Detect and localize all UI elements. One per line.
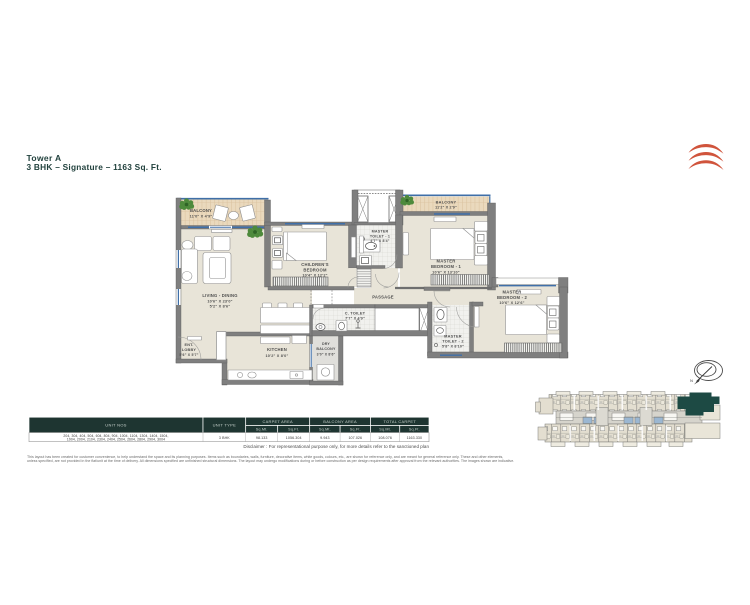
- svg-text:3 BHK – Signature – 1163 Sq. F: 3 BHK – Signature – 1163 Sq. Ft.: [27, 162, 162, 172]
- svg-text:C. TOILET: C. TOILET: [345, 311, 366, 316]
- svg-text:PASSAGE: PASSAGE: [372, 295, 394, 300]
- svg-text:BALCONY: BALCONY: [436, 200, 457, 205]
- svg-text:1904, 2004, 2104, 2304, 2404,: 1904, 2004, 2104, 2304, 2404, 2504, 2604…: [67, 438, 165, 442]
- svg-text:10'4" X 12'2": 10'4" X 12'2": [302, 273, 327, 277]
- svg-text:TOTAL CARPET: TOTAL CARPET: [384, 419, 417, 424]
- svg-text:Sq.Mt.: Sq.Mt.: [379, 428, 391, 432]
- svg-text:11'2" X 2'9": 11'2" X 2'9": [435, 206, 457, 210]
- svg-text:Sq.Ft.: Sq.Ft.: [350, 428, 361, 432]
- svg-text:5'2" X 8'6": 5'2" X 8'6": [210, 305, 231, 309]
- svg-text:10'6" X 12'6": 10'6" X 12'6": [499, 301, 524, 305]
- svg-text:3'0" X 8'6": 3'0" X 8'6": [317, 353, 336, 357]
- svg-text:DRY: DRY: [322, 342, 330, 346]
- svg-text:7'7" X 4'9": 7'7" X 4'9": [345, 317, 365, 321]
- svg-text:5'6" X 5'7": 5'6" X 5'7": [179, 353, 198, 357]
- svg-text:9.943: 9.943: [320, 436, 330, 440]
- svg-text:108.076: 108.076: [378, 436, 392, 440]
- svg-text:MASTER: MASTER: [372, 230, 389, 234]
- svg-text:Sq.Mt.: Sq.Mt.: [256, 428, 268, 432]
- svg-text:BALCONY: BALCONY: [190, 208, 212, 213]
- svg-text:CHILDREN'S: CHILDREN'S: [301, 262, 328, 267]
- svg-text:4'7" X 8'4": 4'7" X 8'4": [370, 239, 389, 243]
- svg-text:1056.304: 1056.304: [286, 436, 302, 440]
- svg-text:5'8" X 8'10": 5'8" X 8'10": [442, 345, 464, 349]
- svg-text:MASTER: MASTER: [437, 259, 456, 264]
- svg-text:UNIT NOS: UNIT NOS: [105, 423, 126, 428]
- svg-text:11'0" X 4'9": 11'0" X 4'9": [190, 215, 213, 219]
- svg-text:10'2" X 8'0": 10'2" X 8'0": [265, 354, 288, 358]
- svg-text:BEDROOM: BEDROOM: [303, 267, 327, 272]
- svg-text:Sq.Ft.: Sq.Ft.: [288, 428, 299, 432]
- svg-text:Disclaimer : For representatio: Disclaimer : For representational purpos…: [243, 444, 429, 449]
- svg-text:3 BHK: 3 BHK: [219, 436, 230, 440]
- svg-text:ENT.: ENT.: [184, 343, 193, 347]
- svg-text:LIVING - DINING: LIVING - DINING: [202, 293, 237, 298]
- svg-text:MASTER: MASTER: [503, 290, 522, 295]
- svg-text:Sq.Ft.: Sq.Ft.: [409, 428, 420, 432]
- svg-text:1163.330: 1163.330: [407, 436, 423, 440]
- svg-text:BEDROOM - 2: BEDROOM - 2: [497, 295, 528, 300]
- svg-text:107.026: 107.026: [348, 436, 362, 440]
- svg-text:KITCHEN: KITCHEN: [267, 347, 287, 352]
- svg-text:98.133: 98.133: [256, 436, 268, 440]
- svg-text:LOBBY: LOBBY: [182, 348, 197, 352]
- svg-text:N: N: [690, 379, 693, 383]
- svg-text:TOILET - 1: TOILET - 1: [370, 234, 390, 238]
- svg-text:TOILET - 2: TOILET - 2: [442, 339, 464, 344]
- svg-text:BALCONY AREA: BALCONY AREA: [323, 419, 357, 424]
- svg-text:CARPET AREA: CARPET AREA: [262, 419, 293, 424]
- svg-text:10'6" X 13'10": 10'6" X 13'10": [432, 270, 460, 274]
- svg-text:BALCONY: BALCONY: [316, 347, 336, 351]
- svg-text:Sq.Mt.: Sq.Mt.: [319, 428, 331, 432]
- svg-text:UNIT TYPE: UNIT TYPE: [213, 423, 236, 428]
- svg-text:10'6" X 23'0": 10'6" X 23'0": [207, 300, 232, 304]
- svg-text:BEDROOM - 1: BEDROOM - 1: [431, 264, 462, 269]
- svg-text:unless specified, are not prov: unless specified, are not provided in th…: [27, 459, 514, 463]
